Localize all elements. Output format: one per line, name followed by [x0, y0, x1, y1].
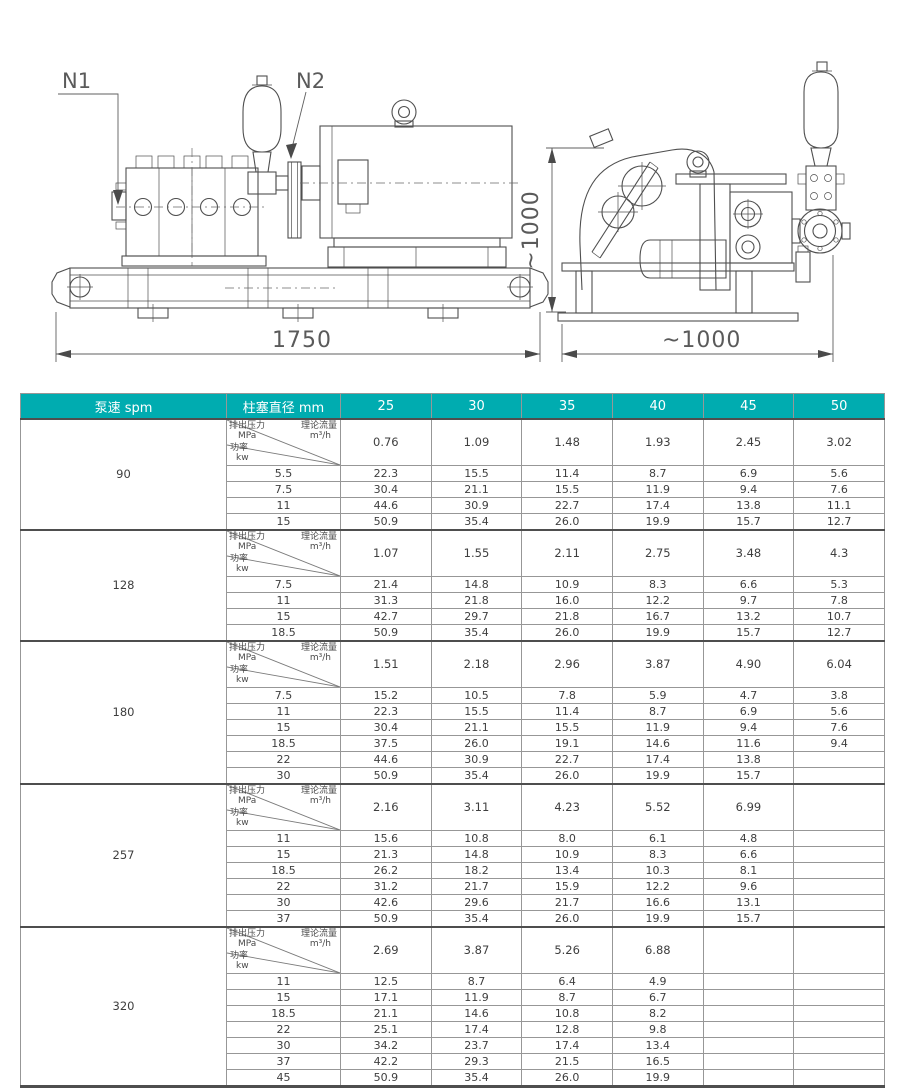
- motor-eyebolt: [392, 100, 416, 124]
- power-value-cell: 26.0: [522, 514, 613, 531]
- corner-cell: 排出压力MPa理论流量m³/h功率kw: [227, 530, 341, 577]
- power-value-cell: 34.2: [341, 1038, 432, 1054]
- header-diameter-4: 45: [703, 394, 794, 420]
- power-value-cell: 5.9: [612, 688, 703, 704]
- power-value-cell: 13.8: [703, 752, 794, 768]
- corner-power-label: 功率: [230, 666, 248, 675]
- pressure-cell: 22: [227, 879, 341, 895]
- power-value-cell: [703, 1070, 794, 1087]
- power-value-cell: 15.6: [341, 831, 432, 847]
- length-dim-label: 1750: [272, 328, 332, 353]
- pressure-cell: 45: [227, 1070, 341, 1087]
- power-value-cell: 23.7: [431, 1038, 522, 1054]
- power-value-cell: 44.6: [341, 752, 432, 768]
- power-value-cell: 25.1: [341, 1022, 432, 1038]
- power-value-cell: 6.1: [612, 831, 703, 847]
- corner-flow-label: 理论流量: [301, 644, 337, 653]
- power-value-cell: 12.5: [341, 974, 432, 990]
- pressure-cell: 11: [227, 498, 341, 514]
- power-value-cell: [703, 990, 794, 1006]
- power-value-cell: 10.9: [522, 577, 613, 593]
- power-value-cell: 30.4: [341, 482, 432, 498]
- power-value-cell: 17.4: [612, 752, 703, 768]
- pressure-cell: 18.5: [227, 625, 341, 642]
- flow-value-cell: 5.26: [522, 927, 613, 974]
- corner-pressure-label: 排出压力: [229, 787, 265, 796]
- flow-value-cell: 6.88: [612, 927, 703, 974]
- power-value-cell: 8.2: [612, 1006, 703, 1022]
- corner-flow-label: 理论流量: [301, 422, 337, 431]
- power-value-cell: 13.2: [703, 609, 794, 625]
- pressure-cell: 11: [227, 974, 341, 990]
- flow-value-cell: 4.3: [794, 530, 885, 577]
- flow-row: 320排出压力MPa理论流量m³/h功率kw2.693.875.266.88: [21, 927, 885, 974]
- power-value-cell: 6.6: [703, 577, 794, 593]
- corner-cell: 排出压力MPa理论流量m³/h功率kw: [227, 784, 341, 831]
- power-value-cell: 6.6: [703, 847, 794, 863]
- flow-value-cell: 4.90: [703, 641, 794, 688]
- power-value-cell: 8.1: [703, 863, 794, 879]
- pressure-cell: 15: [227, 720, 341, 736]
- discharge-flange-end: [792, 209, 850, 253]
- nozzle-n1-label: N1: [62, 69, 91, 93]
- pressure-cell: 22: [227, 1022, 341, 1038]
- skid-base: [52, 268, 548, 322]
- fluid-end-block: [112, 148, 268, 266]
- power-value-cell: 14.8: [431, 847, 522, 863]
- power-value-cell: 12.7: [794, 514, 885, 531]
- pressure-cell: 11: [227, 704, 341, 720]
- power-value-cell: 19.9: [612, 911, 703, 928]
- corner-power-label: 功率: [230, 809, 248, 818]
- power-value-cell: 50.9: [341, 1070, 432, 1087]
- power-value-cell: 8.7: [431, 974, 522, 990]
- header-diameter-5: 50: [794, 394, 885, 420]
- power-value-cell: 4.7: [703, 688, 794, 704]
- corner-pressure-unit: MPa: [238, 940, 256, 949]
- flow-row: 257排出压力MPa理论流量m³/h功率kw2.163.114.235.526.…: [21, 784, 885, 831]
- flow-value-cell: 4.23: [522, 784, 613, 831]
- pressure-cell: 18.5: [227, 736, 341, 752]
- pressure-cell: 15: [227, 609, 341, 625]
- corner-power-unit: kw: [236, 454, 249, 463]
- power-value-cell: 18.2: [431, 863, 522, 879]
- power-value-cell: 16.7: [612, 609, 703, 625]
- power-value-cell: 21.1: [431, 720, 522, 736]
- power-value-cell: 4.9: [612, 974, 703, 990]
- flow-value-cell: 1.48: [522, 419, 613, 466]
- power-value-cell: 6.4: [522, 974, 613, 990]
- flow-value-cell: 2.75: [612, 530, 703, 577]
- power-value-cell: 44.6: [341, 498, 432, 514]
- corner-flow-label: 理论流量: [301, 930, 337, 939]
- power-value-cell: 26.0: [522, 625, 613, 642]
- power-value-cell: 4.8: [703, 831, 794, 847]
- corner-pressure-unit: MPa: [238, 797, 256, 806]
- corner-power-unit: kw: [236, 565, 249, 574]
- power-value-cell: [703, 1006, 794, 1022]
- header-diameter-0: 25: [341, 394, 432, 420]
- corner-flow-label: 理论流量: [301, 533, 337, 542]
- corner-power-label: 功率: [230, 555, 248, 564]
- power-value-cell: 11.9: [612, 720, 703, 736]
- power-value-cell: 21.8: [522, 609, 613, 625]
- pressure-cell: 22: [227, 752, 341, 768]
- corner-flow-unit: m³/h: [310, 543, 331, 552]
- flow-value-cell: 1.09: [431, 419, 522, 466]
- power-value-cell: 37.5: [341, 736, 432, 752]
- corner-flow-unit: m³/h: [310, 654, 331, 663]
- pressure-cell: 11: [227, 593, 341, 609]
- speed-cell: 180: [21, 641, 227, 784]
- power-value-cell: 50.9: [341, 911, 432, 928]
- flow-row: 128排出压力MPa理论流量m³/h功率kw1.071.552.112.753.…: [21, 530, 885, 577]
- pressure-cell: 7.5: [227, 577, 341, 593]
- corner-pressure-label: 排出压力: [229, 533, 265, 542]
- flow-value-cell: 0.76: [341, 419, 432, 466]
- power-value-cell: 15.5: [522, 482, 613, 498]
- power-value-cell: [794, 1054, 885, 1070]
- power-value-cell: 16.5: [612, 1054, 703, 1070]
- power-value-cell: 21.8: [431, 593, 522, 609]
- power-value-cell: 8.0: [522, 831, 613, 847]
- power-value-cell: 50.9: [341, 768, 432, 785]
- n2-leader-arrow: [286, 143, 297, 159]
- power-value-cell: 21.7: [431, 879, 522, 895]
- power-value-cell: 31.3: [341, 593, 432, 609]
- speed-cell: 320: [21, 927, 227, 1087]
- power-value-cell: 11.4: [522, 704, 613, 720]
- power-value-cell: 21.3: [341, 847, 432, 863]
- power-value-cell: 26.0: [522, 1070, 613, 1087]
- power-value-cell: 10.9: [522, 847, 613, 863]
- power-value-cell: 29.3: [431, 1054, 522, 1070]
- corner-power-unit: kw: [236, 676, 249, 685]
- speed-cell: 90: [21, 419, 227, 530]
- power-value-cell: 9.7: [703, 593, 794, 609]
- power-value-cell: 5.6: [794, 704, 885, 720]
- power-value-cell: 12.2: [612, 593, 703, 609]
- power-value-cell: 9.4: [794, 736, 885, 752]
- flow-value-cell: 3.02: [794, 419, 885, 466]
- power-value-cell: 16.0: [522, 593, 613, 609]
- power-value-cell: 15.9: [522, 879, 613, 895]
- flow-value-cell: 6.99: [703, 784, 794, 831]
- power-value-cell: 7.6: [794, 482, 885, 498]
- flow-value-cell: 2.16: [341, 784, 432, 831]
- power-value-cell: 29.7: [431, 609, 522, 625]
- pressure-cell: 15: [227, 514, 341, 531]
- power-value-cell: 10.7: [794, 609, 885, 625]
- power-value-cell: 21.4: [341, 577, 432, 593]
- pressure-cell: 11: [227, 831, 341, 847]
- power-value-cell: 8.7: [612, 704, 703, 720]
- power-value-cell: 17.1: [341, 990, 432, 1006]
- power-value-cell: 12.8: [522, 1022, 613, 1038]
- corner-pressure-unit: MPa: [238, 432, 256, 441]
- motor: [300, 100, 518, 267]
- power-value-cell: 12.7: [794, 625, 885, 642]
- power-value-cell: 9.8: [612, 1022, 703, 1038]
- power-value-cell: 14.6: [431, 1006, 522, 1022]
- power-value-cell: 19.9: [612, 768, 703, 785]
- power-value-cell: 12.2: [612, 879, 703, 895]
- corner-power-label: 功率: [230, 952, 248, 961]
- power-value-cell: 15.2: [341, 688, 432, 704]
- power-value-cell: 21.1: [431, 482, 522, 498]
- power-value-cell: 6.9: [703, 704, 794, 720]
- power-value-cell: 19.1: [522, 736, 613, 752]
- table-header-row: 泵速 spm柱塞直径 mm253035404550: [21, 394, 885, 420]
- power-value-cell: 9.6: [703, 879, 794, 895]
- pressure-cell: 37: [227, 1054, 341, 1070]
- power-value-cell: 19.9: [612, 1070, 703, 1087]
- power-value-cell: 10.5: [431, 688, 522, 704]
- corner-pressure-label: 排出压力: [229, 930, 265, 939]
- power-value-cell: 19.9: [612, 625, 703, 642]
- pump-drawings: N1 N2: [0, 0, 900, 390]
- power-value-cell: [794, 990, 885, 1006]
- header-diameter-1: 30: [431, 394, 522, 420]
- pressure-cell: 7.5: [227, 482, 341, 498]
- power-value-cell: [794, 831, 885, 847]
- power-value-cell: [794, 1022, 885, 1038]
- power-value-cell: 8.3: [612, 577, 703, 593]
- pressure-cell: 18.5: [227, 1006, 341, 1022]
- power-value-cell: 10.8: [431, 831, 522, 847]
- pressure-cell: 30: [227, 1038, 341, 1054]
- flow-value-cell: 3.87: [431, 927, 522, 974]
- power-value-cell: 35.4: [431, 1070, 522, 1087]
- nozzle-n2-label: N2: [296, 69, 325, 93]
- flow-value-cell: 2.69: [341, 927, 432, 974]
- accumulator-side: [243, 76, 281, 172]
- flow-value-cell: 3.87: [612, 641, 703, 688]
- end-view-fluid-end: [640, 174, 810, 290]
- power-value-cell: 10.3: [612, 863, 703, 879]
- corner-pressure-unit: MPa: [238, 654, 256, 663]
- discharge-flange-side: [288, 162, 301, 238]
- speed-cell: 257: [21, 784, 227, 927]
- power-value-cell: 14.6: [612, 736, 703, 752]
- power-value-cell: 11.1: [794, 498, 885, 514]
- power-value-cell: 5.3: [794, 577, 885, 593]
- power-value-cell: [794, 1006, 885, 1022]
- corner-cell: 排出压力MPa理论流量m³/h功率kw: [227, 927, 341, 974]
- power-value-cell: 42.7: [341, 609, 432, 625]
- power-value-cell: 35.4: [431, 625, 522, 642]
- end-view-base: [558, 263, 798, 321]
- power-value-cell: 42.6: [341, 895, 432, 911]
- flow-row: 90排出压力MPa理论流量m³/h功率kw0.761.091.481.932.4…: [21, 419, 885, 466]
- flow-row: 180排出压力MPa理论流量m³/h功率kw1.512.182.963.874.…: [21, 641, 885, 688]
- flow-value-cell: 1.55: [431, 530, 522, 577]
- power-value-cell: [794, 768, 885, 785]
- corner-flow-unit: m³/h: [310, 940, 331, 949]
- speed-cell: 128: [21, 530, 227, 641]
- header-diameter-2: 35: [522, 394, 613, 420]
- corner-flow-label: 理论流量: [301, 787, 337, 796]
- power-value-cell: 11.9: [431, 990, 522, 1006]
- header-diameter-3: 40: [612, 394, 703, 420]
- pressure-cell: 15: [227, 847, 341, 863]
- power-value-cell: 26.0: [431, 736, 522, 752]
- power-value-cell: 15.7: [703, 768, 794, 785]
- power-value-cell: 9.4: [703, 720, 794, 736]
- power-value-cell: [794, 895, 885, 911]
- pressure-cell: 30: [227, 895, 341, 911]
- corner-cell: 排出压力MPa理论流量m³/h功率kw: [227, 419, 341, 466]
- power-value-cell: 7.8: [522, 688, 613, 704]
- power-value-cell: 16.6: [612, 895, 703, 911]
- power-value-cell: 15.5: [431, 704, 522, 720]
- power-value-cell: 11.6: [703, 736, 794, 752]
- spec-table-section: 泵速 spm柱塞直径 mm25303540455090排出压力MPa理论流量m³…: [20, 393, 885, 1088]
- flow-value-cell: [794, 784, 885, 831]
- power-value-cell: 9.4: [703, 482, 794, 498]
- power-value-cell: 35.4: [431, 514, 522, 531]
- power-value-cell: 35.4: [431, 768, 522, 785]
- power-value-cell: 13.1: [703, 895, 794, 911]
- power-value-cell: 8.7: [522, 990, 613, 1006]
- power-value-cell: 3.8: [794, 688, 885, 704]
- corner-power-unit: kw: [236, 962, 249, 971]
- power-value-cell: 17.4: [522, 1038, 613, 1054]
- flow-value-cell: 2.96: [522, 641, 613, 688]
- power-value-cell: 30.9: [431, 752, 522, 768]
- corner-cell: 排出压力MPa理论流量m³/h功率kw: [227, 641, 341, 688]
- flow-value-cell: 1.93: [612, 419, 703, 466]
- power-value-cell: 50.9: [341, 514, 432, 531]
- power-value-cell: [794, 847, 885, 863]
- power-value-cell: 42.2: [341, 1054, 432, 1070]
- power-value-cell: [794, 974, 885, 990]
- power-value-cell: 13.4: [522, 863, 613, 879]
- power-value-cell: [703, 1038, 794, 1054]
- flow-value-cell: 6.04: [794, 641, 885, 688]
- motor-junction-box: [338, 160, 368, 204]
- pressure-cell: 7.5: [227, 688, 341, 704]
- power-value-cell: 8.3: [612, 847, 703, 863]
- power-value-cell: 21.5: [522, 1054, 613, 1070]
- power-value-cell: 13.4: [612, 1038, 703, 1054]
- corner-flow-unit: m³/h: [310, 797, 331, 806]
- power-value-cell: 8.7: [612, 466, 703, 482]
- power-value-cell: [794, 752, 885, 768]
- power-value-cell: 14.8: [431, 577, 522, 593]
- housing-eyebolt: [687, 151, 709, 173]
- accumulator-end: [798, 62, 844, 210]
- power-value-cell: [794, 911, 885, 928]
- power-value-cell: 11.9: [612, 482, 703, 498]
- power-value-cell: 26.0: [522, 911, 613, 928]
- corner-pressure-unit: MPa: [238, 543, 256, 552]
- power-value-cell: 17.4: [431, 1022, 522, 1038]
- power-value-cell: 21.1: [341, 1006, 432, 1022]
- power-value-cell: 31.2: [341, 879, 432, 895]
- power-value-cell: 13.8: [703, 498, 794, 514]
- power-value-cell: 15.7: [703, 514, 794, 531]
- power-value-cell: 22.3: [341, 704, 432, 720]
- power-value-cell: 11.4: [522, 466, 613, 482]
- power-value-cell: 15.7: [703, 625, 794, 642]
- flow-value-cell: 2.18: [431, 641, 522, 688]
- corner-power-label: 功率: [230, 444, 248, 453]
- power-value-cell: 10.8: [522, 1006, 613, 1022]
- flow-value-cell: 1.07: [341, 530, 432, 577]
- power-value-cell: [703, 1054, 794, 1070]
- corner-pressure-label: 排出压力: [229, 422, 265, 431]
- power-value-cell: 22.7: [522, 752, 613, 768]
- power-value-cell: 50.9: [341, 625, 432, 642]
- pressure-cell: 5.5: [227, 466, 341, 482]
- power-value-cell: [794, 879, 885, 895]
- power-value-cell: 7.6: [794, 720, 885, 736]
- power-value-cell: 7.8: [794, 593, 885, 609]
- flow-value-cell: 5.52: [612, 784, 703, 831]
- power-value-cell: 21.7: [522, 895, 613, 911]
- power-value-cell: [794, 1038, 885, 1054]
- pressure-cell: 18.5: [227, 863, 341, 879]
- pump-spec-table: 泵速 spm柱塞直径 mm25303540455090排出压力MPa理论流量m³…: [20, 393, 885, 1088]
- flow-value-cell: 3.11: [431, 784, 522, 831]
- power-value-cell: 15.7: [703, 911, 794, 928]
- power-value-cell: 22.7: [522, 498, 613, 514]
- power-value-cell: 19.9: [612, 514, 703, 531]
- flow-value-cell: 1.51: [341, 641, 432, 688]
- power-value-cell: [794, 863, 885, 879]
- power-value-cell: [794, 1070, 885, 1087]
- side-view-drawing: N1 N2: [52, 69, 548, 362]
- corner-pressure-label: 排出压力: [229, 644, 265, 653]
- power-value-cell: 6.7: [612, 990, 703, 1006]
- power-value-cell: 29.6: [431, 895, 522, 911]
- flow-value-cell: [703, 927, 794, 974]
- height-dimension: ~1000: [519, 148, 604, 312]
- pressure-cell: 37: [227, 911, 341, 928]
- pressure-cell: 30: [227, 768, 341, 785]
- power-value-cell: [703, 974, 794, 990]
- flow-value-cell: [794, 927, 885, 974]
- pressure-cell: 15: [227, 990, 341, 1006]
- power-value-cell: 35.4: [431, 911, 522, 928]
- power-value-cell: 5.6: [794, 466, 885, 482]
- flow-value-cell: 2.11: [522, 530, 613, 577]
- flow-value-cell: 3.48: [703, 530, 794, 577]
- width-dim-label: ~1000: [662, 328, 741, 353]
- power-value-cell: [703, 1022, 794, 1038]
- power-value-cell: 26.2: [341, 863, 432, 879]
- power-value-cell: 30.9: [431, 498, 522, 514]
- power-value-cell: 22.3: [341, 466, 432, 482]
- power-value-cell: 17.4: [612, 498, 703, 514]
- power-value-cell: 6.9: [703, 466, 794, 482]
- gear-housing: [580, 129, 716, 290]
- power-value-cell: 15.5: [431, 466, 522, 482]
- corner-flow-unit: m³/h: [310, 432, 331, 441]
- flow-value-cell: 2.45: [703, 419, 794, 466]
- height-dim-label: ~1000: [519, 190, 544, 269]
- header-speed: 泵速 spm: [21, 394, 227, 420]
- power-value-cell: 26.0: [522, 768, 613, 785]
- header-plunger-diameter: 柱塞直径 mm: [227, 394, 341, 420]
- power-value-cell: 30.4: [341, 720, 432, 736]
- power-value-cell: 15.5: [522, 720, 613, 736]
- corner-power-unit: kw: [236, 819, 249, 828]
- end-view-drawing: ~1000: [519, 62, 850, 362]
